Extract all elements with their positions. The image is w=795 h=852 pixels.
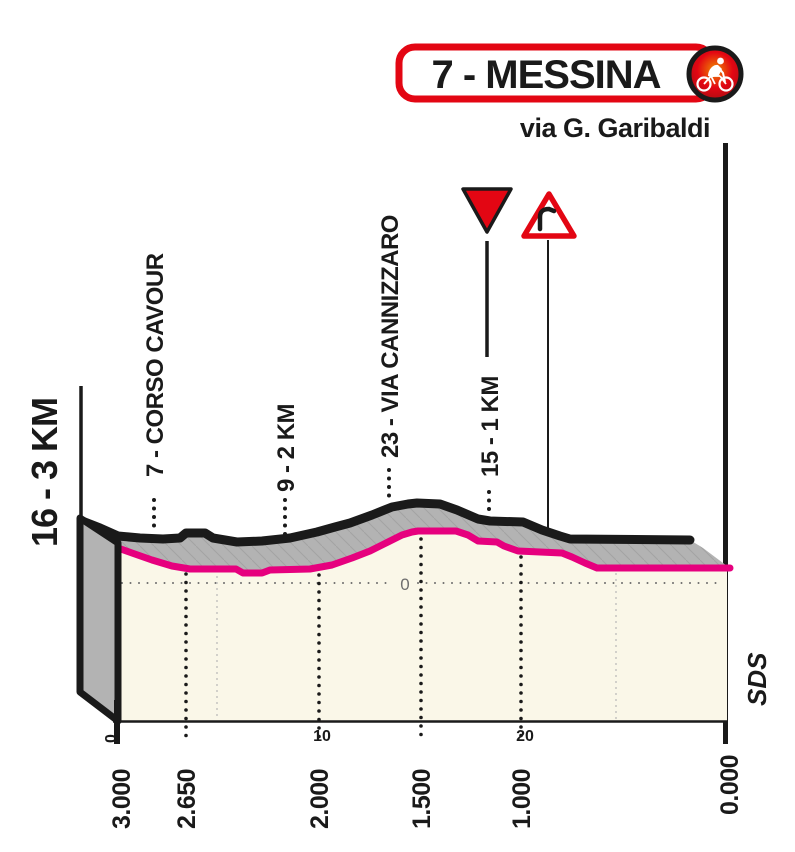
label-left-edge-km: 16 - 3 KM bbox=[24, 398, 65, 547]
axis-label-3000: 3.000 bbox=[108, 769, 136, 829]
scale-mark-10: 10 bbox=[313, 728, 331, 745]
axis-label-2000: 2.000 bbox=[306, 769, 334, 829]
scale-mark-20: 20 bbox=[516, 728, 534, 745]
sds-credit: SDS bbox=[742, 652, 772, 706]
stage-profile-page: 7 - MESSINA via G. Garibaldi 16 - 3 KM 7… bbox=[0, 0, 795, 852]
sprint-cyclist-icon bbox=[689, 48, 741, 100]
stage-title: 7 - MESSINA bbox=[431, 53, 660, 97]
dangerous-bend-icon bbox=[524, 194, 574, 531]
label-2km: 9 - 2 KM bbox=[273, 404, 300, 492]
distance-axis-labels: 3.000 2.650 2.000 1.500 1.000 0.000 bbox=[108, 755, 744, 829]
sea-level-zero-label: 0 bbox=[400, 575, 409, 594]
axis-label-1000: 1.000 bbox=[508, 769, 536, 829]
axis-label-1500: 1.500 bbox=[408, 769, 436, 829]
scale-mark-0: 0 bbox=[103, 734, 120, 743]
stage-title-badge: 7 - MESSINA bbox=[399, 47, 741, 100]
profile-left-face bbox=[80, 518, 118, 721]
label-via-cannizzaro: 23 - VIA CANNIZZARO bbox=[377, 215, 404, 458]
label-corso-cavour: 7 - CORSO CAVOUR bbox=[142, 253, 169, 477]
rider-head-icon bbox=[717, 58, 724, 65]
inverted-red-triangle-icon bbox=[463, 189, 511, 357]
axis-label-0000: 0.000 bbox=[716, 755, 744, 815]
profile-figure: 7 - MESSINA via G. Garibaldi 16 - 3 KM 7… bbox=[0, 0, 795, 852]
finish-street-label: via G. Garibaldi bbox=[520, 113, 710, 143]
label-1km: 15 - 1 KM bbox=[477, 376, 504, 477]
axis-label-2650: 2.650 bbox=[173, 769, 201, 829]
